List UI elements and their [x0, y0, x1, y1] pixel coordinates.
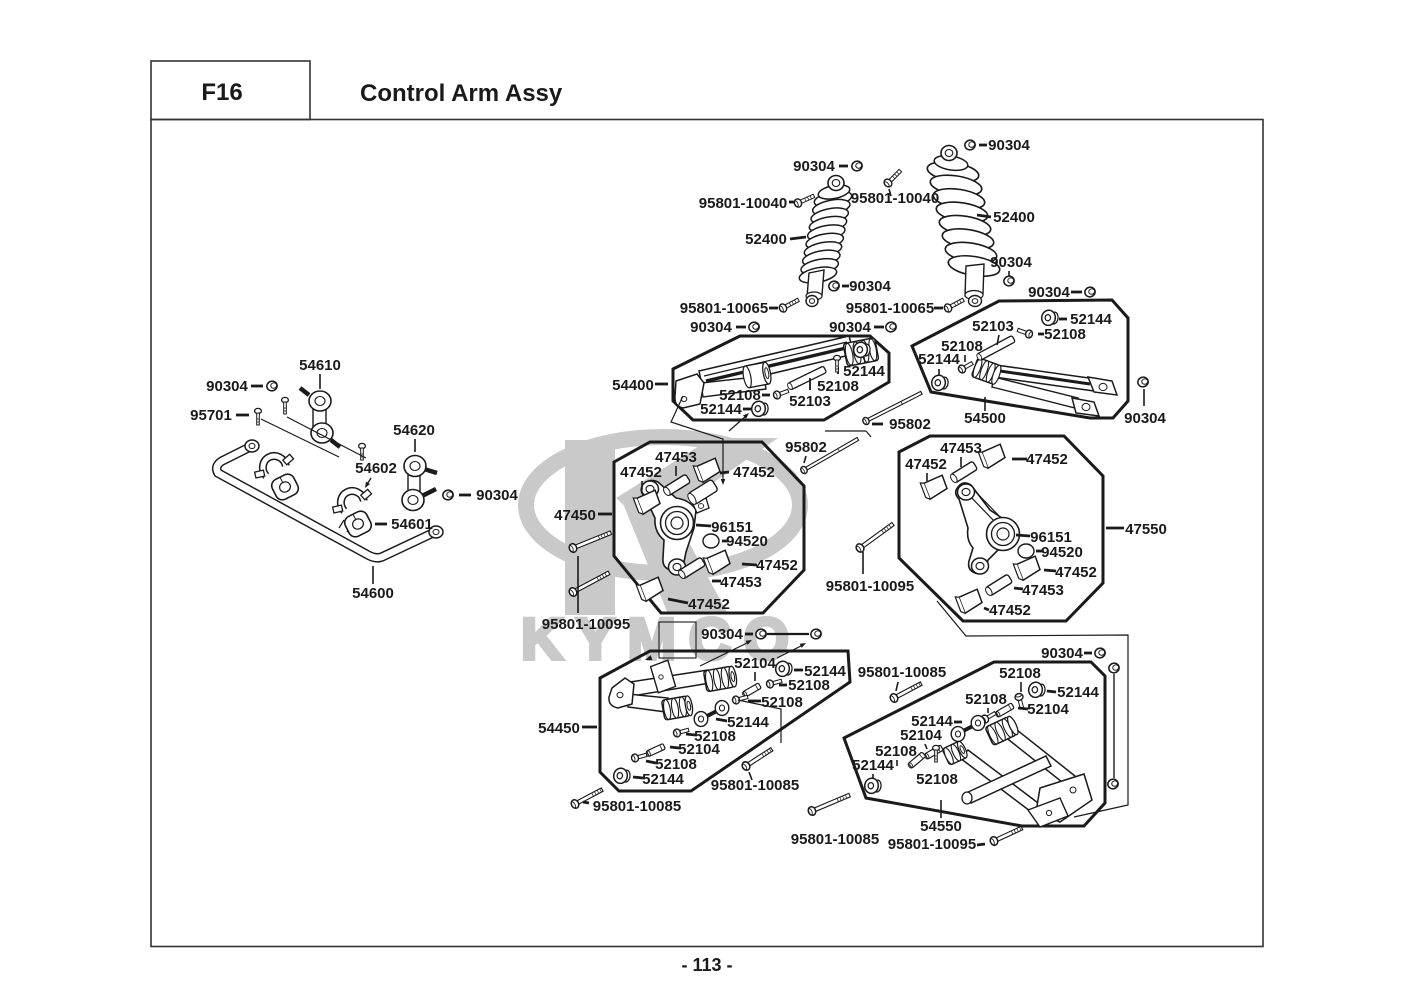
svg-text:54600: 54600: [352, 585, 394, 602]
svg-text:95801-10040: 95801-10040: [851, 190, 939, 207]
svg-text:52144: 52144: [642, 771, 684, 788]
svg-text:54610: 54610: [299, 357, 341, 374]
svg-text:52144: 52144: [700, 401, 742, 418]
svg-text:52144: 52144: [843, 363, 885, 380]
svg-text:95801-10085: 95801-10085: [858, 664, 946, 681]
svg-text:52108: 52108: [965, 691, 1007, 708]
svg-text:- 113 -: - 113 -: [681, 955, 732, 975]
svg-text:90304: 90304: [849, 278, 891, 295]
svg-text:95801-10040: 95801-10040: [699, 195, 787, 212]
svg-text:95802: 95802: [889, 416, 931, 433]
svg-text:54602: 54602: [355, 460, 397, 477]
svg-text:52108: 52108: [1044, 326, 1086, 343]
svg-text:52108: 52108: [916, 771, 958, 788]
svg-text:54400: 54400: [612, 377, 654, 394]
svg-text:54500: 54500: [964, 410, 1006, 427]
svg-text:52144: 52144: [852, 757, 894, 774]
svg-text:90304: 90304: [793, 158, 835, 175]
svg-text:95801-10095: 95801-10095: [826, 578, 914, 595]
svg-text:95801-10065: 95801-10065: [846, 300, 934, 317]
svg-text:94520: 94520: [726, 533, 768, 550]
svg-text:52108: 52108: [817, 378, 859, 395]
svg-text:47452: 47452: [756, 557, 798, 574]
svg-text:52400: 52400: [993, 209, 1035, 226]
svg-text:90304: 90304: [1028, 284, 1070, 301]
svg-text:90304: 90304: [829, 319, 871, 336]
svg-text:90304: 90304: [988, 137, 1030, 154]
svg-text:52104: 52104: [1027, 701, 1069, 718]
svg-text:52104: 52104: [734, 655, 776, 672]
svg-text:95801-10095: 95801-10095: [888, 836, 976, 853]
svg-text:52108: 52108: [999, 665, 1041, 682]
svg-text:94520: 94520: [1041, 544, 1083, 561]
svg-text:47452: 47452: [733, 464, 775, 481]
svg-text:F16: F16: [201, 79, 242, 106]
svg-text:90304: 90304: [990, 254, 1032, 271]
svg-text:90304: 90304: [1124, 410, 1166, 427]
svg-text:Control Arm Assy: Control Arm Assy: [360, 80, 563, 107]
svg-text:52144: 52144: [918, 351, 960, 368]
svg-text:47452: 47452: [1055, 564, 1097, 581]
svg-text:47453: 47453: [1022, 582, 1064, 599]
svg-text:47452: 47452: [1026, 451, 1068, 468]
svg-text:52104: 52104: [900, 727, 942, 744]
svg-text:90304: 90304: [1041, 645, 1083, 662]
svg-text:95801-10085: 95801-10085: [711, 777, 799, 794]
svg-text:95801-10085: 95801-10085: [593, 798, 681, 815]
svg-text:95801-10065: 95801-10065: [680, 300, 768, 317]
svg-text:47452: 47452: [905, 456, 947, 473]
svg-text:52103: 52103: [789, 393, 831, 410]
svg-text:54601: 54601: [391, 516, 433, 533]
svg-text:47453: 47453: [720, 574, 762, 591]
svg-text:95801-10095: 95801-10095: [542, 616, 630, 633]
svg-text:47453: 47453: [940, 440, 982, 457]
svg-text:54450: 54450: [538, 720, 580, 737]
svg-text:47452: 47452: [989, 602, 1031, 619]
svg-text:90304: 90304: [206, 378, 248, 395]
svg-text:52103: 52103: [972, 318, 1014, 335]
svg-text:47450: 47450: [554, 507, 596, 524]
svg-text:90304: 90304: [476, 487, 518, 504]
svg-text:95802: 95802: [785, 439, 827, 456]
svg-text:52108: 52108: [761, 694, 803, 711]
svg-text:52400: 52400: [745, 231, 787, 248]
svg-text:47452: 47452: [688, 596, 730, 613]
svg-text:47550: 47550: [1125, 521, 1167, 538]
svg-text:54620: 54620: [393, 422, 435, 439]
svg-text:54550: 54550: [920, 818, 962, 835]
svg-text:90304: 90304: [690, 319, 732, 336]
svg-text:52108: 52108: [788, 677, 830, 694]
svg-text:95801-10085: 95801-10085: [791, 831, 879, 848]
svg-text:52144: 52144: [1057, 684, 1099, 701]
svg-text:90304: 90304: [701, 626, 743, 643]
svg-text:47452: 47452: [620, 464, 662, 481]
svg-text:95701: 95701: [190, 407, 232, 424]
